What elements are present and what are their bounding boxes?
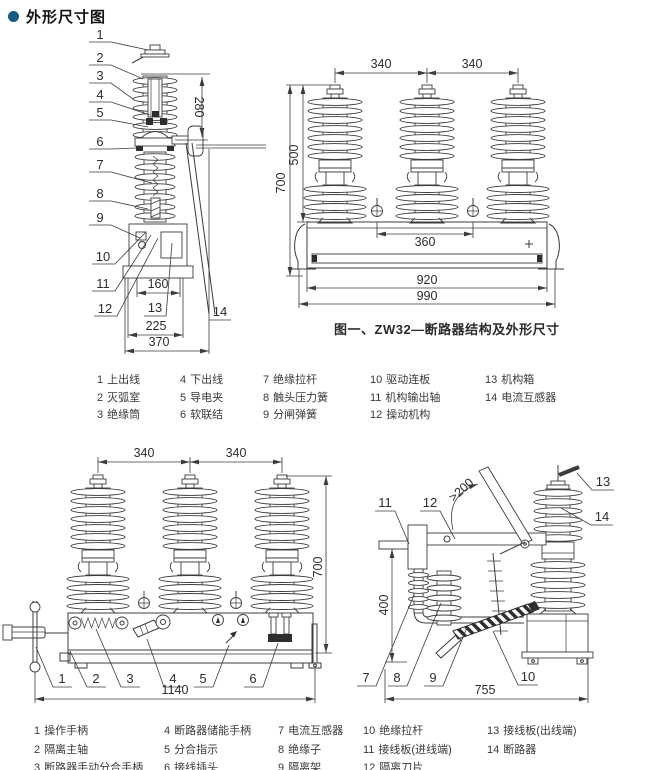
bullet-icon xyxy=(8,11,19,22)
figure2-front-callouts: 1 2 3 4 5 6 xyxy=(36,629,278,687)
legend-item: 4断路器储能手柄 xyxy=(164,722,251,741)
callout: 10 xyxy=(521,669,535,684)
legend-item: 1操作手柄 xyxy=(34,722,143,741)
callout: 6 xyxy=(96,134,103,149)
legend-item: 13机构箱 xyxy=(485,371,556,389)
legend-item: 14电流互感器 xyxy=(485,389,556,407)
legend-item: 8绝缘子 xyxy=(278,741,343,760)
legend2-col5: 13接线板(出线端) 14断路器 xyxy=(487,722,577,759)
dim-label: 400 xyxy=(377,595,391,616)
callout: 1 xyxy=(96,27,103,42)
figure1-front-view-drawing: 340 340 500 700 360 920 990 xyxy=(281,48,653,316)
dim-label: 340 xyxy=(462,57,483,71)
legend-item: 5导电夹 xyxy=(180,389,223,407)
callout: 12 xyxy=(98,301,112,316)
callout: 9 xyxy=(96,210,103,225)
dim-label: 340 xyxy=(371,57,392,71)
callout: 5 xyxy=(199,671,206,686)
figure2-side-view-drawing: >200 400 7 8 9 10 11 12 xyxy=(352,441,652,707)
dim-label: 500 xyxy=(287,145,301,166)
dim-label: 700 xyxy=(274,173,288,194)
legend-item: 7绝缘拉杆 xyxy=(263,371,328,389)
legend-item: 6软联结 xyxy=(180,406,223,424)
dim-label: 370 xyxy=(149,335,170,349)
legend-item: 1上出线 xyxy=(97,371,140,389)
legend-item: 3绝缘筒 xyxy=(97,406,140,424)
figure2-front-view-drawing: 340 340 700 1 2 3 4 5 6 1140 xyxy=(3,441,351,707)
legend-item: 12隔离刀片 xyxy=(363,759,452,770)
legend-item: 7电流互感器 xyxy=(278,722,343,741)
legend2-col3: 7电流互感器 8绝缘子 9隔离架 xyxy=(278,722,343,770)
callout: 6 xyxy=(249,671,256,686)
legend-item: 9隔离架 xyxy=(278,759,343,770)
legend-item: 11机构输出轴 xyxy=(370,389,440,407)
callout: 11 xyxy=(96,276,110,291)
callout: 7 xyxy=(362,670,369,685)
dim-label: 1140 xyxy=(162,683,189,697)
callout: 4 xyxy=(96,87,103,102)
callout: 3 xyxy=(96,68,103,83)
figure1-side-view-drawing: 280 160 225 370 1 2 3 4 5 6 7 8 9 10 11 … xyxy=(58,26,273,374)
datasheet-page: 外形尺寸图 xyxy=(0,0,653,770)
legend1-col1: 1上出线 2灭弧室 3绝缘筒 xyxy=(97,371,140,424)
legend-item: 12操动机构 xyxy=(370,406,440,424)
dim-label: 360 xyxy=(415,235,436,249)
callout: 14 xyxy=(213,304,227,319)
legend-item: 9分闸弹簧 xyxy=(263,406,328,424)
callout: 13 xyxy=(596,474,610,489)
page-title-text: 外形尺寸图 xyxy=(26,6,106,27)
callout: 13 xyxy=(148,300,162,315)
dim-label: 920 xyxy=(417,273,438,287)
legend-item: 11接线板(进线端) xyxy=(363,741,452,760)
callout: 11 xyxy=(378,495,392,510)
dim-label: 160 xyxy=(148,277,169,291)
callout: 7 xyxy=(96,157,103,172)
dim-label: 990 xyxy=(417,289,438,303)
dim-label: 280 xyxy=(192,97,206,118)
legend-item: 6接线插头 xyxy=(164,759,251,770)
dim-label: >200 xyxy=(446,475,476,504)
legend-item: 10绝缘拉杆 xyxy=(363,722,452,741)
legend-item: 13接线板(出线端) xyxy=(487,722,577,741)
figure1-caption: 图一、ZW32—断路器结构及外形尺寸 xyxy=(334,319,560,338)
legend-item: 2隔离主轴 xyxy=(34,741,143,760)
page-title: 外形尺寸图 xyxy=(8,6,106,27)
legend-item: 3断路器手动分合手柄 xyxy=(34,759,143,770)
callout: 14 xyxy=(595,509,609,524)
dim-label: 340 xyxy=(134,446,155,460)
callout: 10 xyxy=(96,249,110,264)
legend-item: 10驱动连板 xyxy=(370,371,440,389)
legend-item: 4下出线 xyxy=(180,371,223,389)
legend2-col4: 10绝缘拉杆 11接线板(进线端) 12隔离刀片 xyxy=(363,722,452,770)
legend-item: 8触头压力簧 xyxy=(263,389,328,407)
dim-label: 755 xyxy=(475,683,496,697)
legend1-col2: 4下出线 5导电夹 6软联结 xyxy=(180,371,223,424)
callout: 9 xyxy=(429,670,436,685)
callout: 5 xyxy=(96,105,103,120)
callout: 1 xyxy=(58,671,65,686)
legend2-col1: 1操作手柄 2隔离主轴 3断路器手动分合手柄 xyxy=(34,722,143,770)
callout: 12 xyxy=(423,495,437,510)
legend-item: 14断路器 xyxy=(487,741,577,760)
dim-label: 340 xyxy=(226,446,247,460)
dim-label: 225 xyxy=(146,319,167,333)
callout: 2 xyxy=(92,671,99,686)
legend1-col4: 10驱动连板 11机构输出轴 12操动机构 xyxy=(370,371,440,424)
legend-item: 2灭弧室 xyxy=(97,389,140,407)
callout: 2 xyxy=(96,50,103,65)
legend1-col3: 7绝缘拉杆 8触头压力簧 9分闸弹簧 xyxy=(263,371,328,424)
dim-label: 700 xyxy=(311,557,325,578)
callout: 8 xyxy=(393,670,400,685)
legend-item: 5分合指示 xyxy=(164,741,251,760)
callout: 8 xyxy=(96,186,103,201)
legend1-col5: 13机构箱 14电流互感器 xyxy=(485,371,556,406)
legend2-col2: 4断路器储能手柄 5分合指示 6接线插头 xyxy=(164,722,251,770)
callout: 3 xyxy=(126,671,133,686)
